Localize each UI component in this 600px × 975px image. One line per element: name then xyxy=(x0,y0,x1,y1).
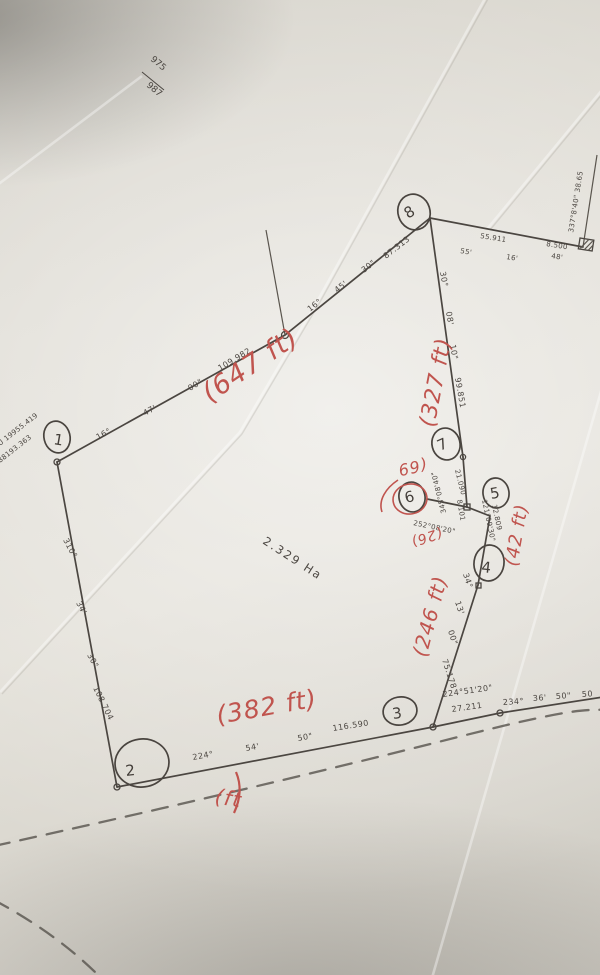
red-note-42ft: (42 ft) xyxy=(501,502,533,568)
road-dashed-corner xyxy=(0,900,103,975)
crease-line xyxy=(0,432,240,692)
distance: 75.178 xyxy=(440,658,458,690)
bearing-deg: 224° xyxy=(192,749,215,762)
red-note-69: (69 xyxy=(396,455,429,480)
sheet-number-top: 975 xyxy=(148,55,168,74)
bearing-sec: 30" xyxy=(85,652,100,670)
crease-line xyxy=(242,0,489,434)
bearing-labels-road: 234° 36' 50" 50 xyxy=(503,689,594,707)
crease-line xyxy=(0,76,142,186)
road-dashed-lines xyxy=(0,708,600,975)
bearing-sec: 16' xyxy=(506,253,519,263)
bearing-extra: 50 xyxy=(582,689,594,699)
monument-box xyxy=(578,238,594,251)
point-3-number: 3 xyxy=(391,704,403,723)
point-6-number: 6 xyxy=(403,487,417,507)
distance: 27.211 xyxy=(451,701,483,714)
bearing-min: 45' xyxy=(333,279,349,295)
bearing-deg: 310° xyxy=(61,537,79,560)
tick-label: 48' xyxy=(551,252,564,262)
point-5-number: 5 xyxy=(489,484,502,503)
red-note-382ft: (382 ft) xyxy=(214,684,319,730)
point-4-number: 4 xyxy=(481,558,492,577)
monument-hatched-box xyxy=(578,238,594,251)
point-7-number: 7 xyxy=(434,434,450,454)
point-8-number: 8 xyxy=(401,202,419,222)
bearing-corner-up: 337°8'40" 38.65 xyxy=(567,170,585,233)
bearing-min: 55' xyxy=(460,247,473,257)
crease-line xyxy=(488,90,600,228)
sheet-number: 975 987 xyxy=(142,55,168,100)
bearing-min: 47' xyxy=(142,403,159,418)
bearing-labels-j-8: 16° 45' 30" 87.313 xyxy=(306,234,412,313)
corner-coordinates: U 19955.419 88193.363 xyxy=(0,411,39,464)
tie-line xyxy=(266,230,285,335)
line-corner-up xyxy=(583,155,597,247)
road-dashed-main xyxy=(0,708,600,846)
bearing-min: 08' xyxy=(444,311,455,326)
survey-map-photo: 1 2 3 4 5 6 7 8 975 987 U 19955.419 8819… xyxy=(0,0,600,975)
distance: 8.101 xyxy=(455,499,467,522)
parcel-boundary-lines xyxy=(57,155,600,787)
bearing-sec: 50" xyxy=(297,731,314,743)
distance: 87.313 xyxy=(382,234,412,260)
paper-creases xyxy=(0,0,600,975)
red-note-327ft: (327 ft) xyxy=(415,336,457,430)
red-note-246ft: (246 ft) xyxy=(408,573,453,659)
bearing-sec: 00" xyxy=(446,629,459,646)
bearing-sec: 50" xyxy=(556,691,572,701)
bearing-deg: 34° xyxy=(461,572,474,590)
bearing-min: 13' xyxy=(453,600,466,616)
bearing: 345°08'40" xyxy=(430,471,448,514)
bearing-deg: 16° xyxy=(95,426,113,441)
crease-line xyxy=(2,434,242,694)
bearing-sec: 30" xyxy=(360,258,378,275)
tie-distance: 8.500 xyxy=(546,240,569,251)
bearing-labels-8-c: 55.911 55' 16' 8.500 48' xyxy=(460,232,569,263)
red-note-647ft: (647 ft) xyxy=(197,322,305,409)
bearing-min: 54' xyxy=(245,742,260,753)
sheet-number-bottom: 987 xyxy=(144,81,164,100)
distance: 116.590 xyxy=(332,718,370,733)
point-1-number: 1 xyxy=(52,430,65,449)
survey-map-canvas: 1 2 3 4 5 6 7 8 975 987 U 19955.419 8819… xyxy=(0,0,600,975)
bearing-deg: 234° xyxy=(503,697,525,707)
bearing-min: 36' xyxy=(533,693,547,703)
line-3-to-2 xyxy=(117,727,433,787)
point-2-number: 2 xyxy=(125,761,136,780)
area-label: 2.329 Ha xyxy=(260,534,325,583)
distance: 55.911 xyxy=(480,232,507,244)
